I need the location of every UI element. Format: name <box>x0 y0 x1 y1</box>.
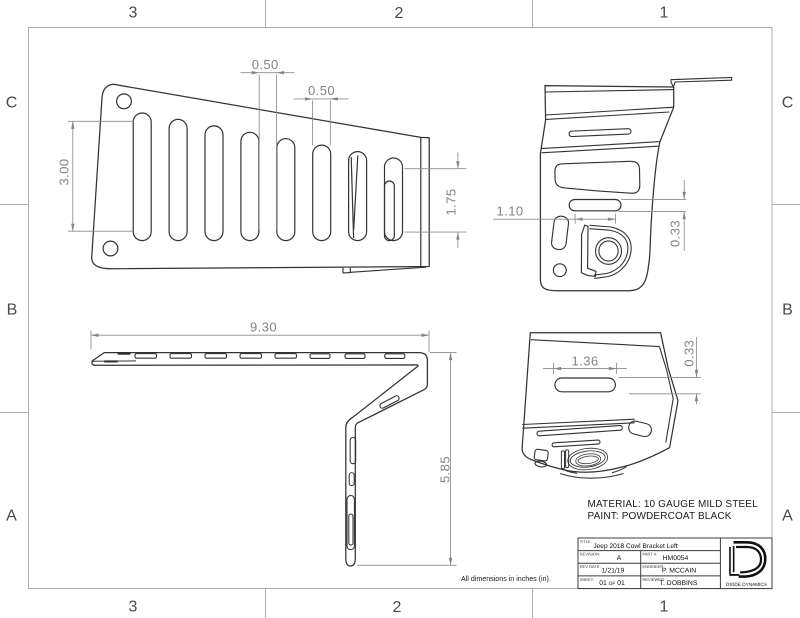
svg-text:1.36: 1.36 <box>572 354 599 369</box>
svg-text:MATERIAL: 10 GAUGE MILD STEEL: MATERIAL: 10 GAUGE MILD STEEL <box>588 499 759 510</box>
svg-text:3.00: 3.00 <box>57 159 72 186</box>
svg-text:1: 1 <box>660 599 669 616</box>
svg-text:1: 1 <box>660 5 669 22</box>
svg-text:ENGINEER:: ENGINEER: <box>643 565 665 570</box>
svg-text:PAINT: POWDERCOAT BLACK: PAINT: POWDERCOAT BLACK <box>588 511 732 522</box>
svg-text:B: B <box>7 302 18 319</box>
svg-text:0.33: 0.33 <box>682 340 697 367</box>
svg-text:P. MCCAIN: P. MCCAIN <box>662 567 696 575</box>
svg-text:B: B <box>782 302 793 319</box>
svg-text:REV DATE:: REV DATE: <box>580 565 601 570</box>
svg-text:Jeep 2018 Cowl Bracket Left: Jeep 2018 Cowl Bracket Left <box>593 542 677 550</box>
svg-text:A: A <box>617 554 622 562</box>
svg-text:T. DOBBINS: T. DOBBINS <box>660 579 698 587</box>
svg-text:All dimensions in inches (in).: All dimensions in inches (in). <box>461 575 551 583</box>
svg-text:C: C <box>782 95 794 112</box>
svg-text:TITLE:: TITLE: <box>580 539 592 544</box>
svg-text:A: A <box>782 508 793 525</box>
svg-text:1/21/19: 1/21/19 <box>602 567 625 575</box>
svg-text:REVISION:: REVISION: <box>580 552 600 557</box>
svg-text:A: A <box>6 508 17 525</box>
svg-text:9.30: 9.30 <box>250 320 277 335</box>
svg-text:SHEET:: SHEET: <box>580 577 594 582</box>
svg-text:1.75: 1.75 <box>443 189 458 216</box>
svg-text:0.33: 0.33 <box>668 220 683 247</box>
svg-text:3: 3 <box>129 5 138 22</box>
svg-text:DIODE DYNAMICS: DIODE DYNAMICS <box>726 581 767 587</box>
svg-text:PART #:: PART #: <box>643 552 658 557</box>
svg-text:0.50: 0.50 <box>252 57 279 72</box>
svg-text:3: 3 <box>129 599 138 616</box>
svg-text:HM0054: HM0054 <box>663 554 689 562</box>
svg-text:1.10: 1.10 <box>497 204 524 219</box>
svg-text:5.85: 5.85 <box>437 456 452 483</box>
svg-text:0.50: 0.50 <box>308 83 335 98</box>
svg-text:C: C <box>6 95 18 112</box>
svg-text:2: 2 <box>393 599 402 616</box>
svg-text:2: 2 <box>395 5 404 22</box>
